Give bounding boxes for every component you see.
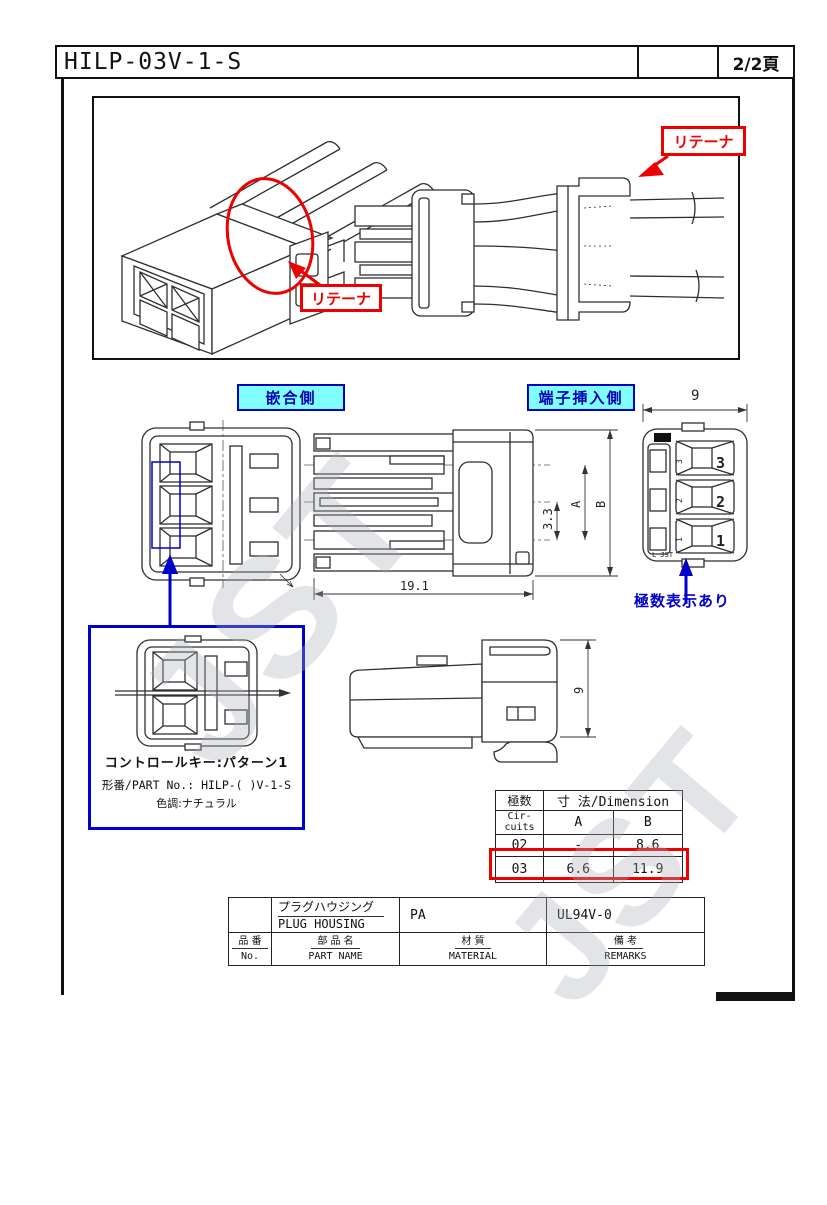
circuit-number-3: 3 xyxy=(716,454,725,472)
circuit-number-2: 2 xyxy=(716,493,725,511)
dim-table-col-b: B xyxy=(613,811,683,835)
detail-part-no: 形番/PART No.: HILP-( )V-1-S xyxy=(91,777,302,793)
svg-text:3: 3 xyxy=(675,459,684,464)
front-view-drawing xyxy=(130,418,310,590)
dim-table-header-circuits-jp: 極数 xyxy=(496,791,544,811)
control-key-detail-box: コントロールキー:パターン1 形番/PART No.: HILP-( )V-1-… xyxy=(88,625,305,830)
profile-view-drawing: 9 xyxy=(322,622,622,782)
svg-text:1: 1 xyxy=(675,537,684,542)
parts-name-value: プラグハウジング PLUG HOUSING xyxy=(272,898,400,933)
molded-text: L JST xyxy=(652,551,674,559)
dim-b: B xyxy=(594,501,608,508)
svg-text:2: 2 xyxy=(675,498,684,503)
circuit-number-1: 1 xyxy=(716,532,725,550)
dim-table-header-dimension: 寸 法/Dimension xyxy=(544,791,683,811)
parts-remarks-value: UL94V-0 xyxy=(547,898,705,933)
dim-19-1: 19.1 xyxy=(400,579,429,593)
frame-left-line xyxy=(61,78,64,995)
pictorial-views-drawing xyxy=(92,96,740,360)
parts-col-no: 品 番 No. xyxy=(229,933,272,966)
highlight-row-03 xyxy=(489,848,689,880)
rear-view-drawing: 9 3 xyxy=(634,386,800,614)
parts-table: プラグハウジング PLUG HOUSING PA UL94V-0 品 番 No.… xyxy=(228,897,705,966)
control-key-drawing xyxy=(99,634,297,752)
part-number-title: HILP-03V-1-S xyxy=(57,47,637,77)
mating-side-label: 嵌合側 xyxy=(237,384,345,411)
dim-a: A xyxy=(569,500,583,508)
dim-9-width: 9 xyxy=(691,388,699,404)
parts-col-remarks: 備 考 REMARKS xyxy=(547,933,705,966)
frame-bottom-right-segment xyxy=(716,992,795,1001)
drawing-sheet: HILP-03V-1-S 2/2頁 xyxy=(0,0,827,1205)
parts-no-value xyxy=(229,898,272,933)
dim-3-3: 3.3 xyxy=(541,508,555,530)
title-bar: HILP-03V-1-S 2/2頁 xyxy=(55,45,795,79)
title-spacer-cell xyxy=(637,47,717,77)
dim-9-height: 9 xyxy=(572,687,586,694)
detail-color-tone: 色調:ナチュラル xyxy=(91,795,302,811)
dim-table-col-a: A xyxy=(544,811,614,835)
control-key-text: コントロールキー:パターン1 xyxy=(91,752,302,771)
circuit-count-note: 極数表示あり xyxy=(634,590,750,611)
terminal-insertion-side-label: 端子挿入側 xyxy=(527,384,635,411)
detail-leader-arrow xyxy=(158,552,184,630)
parts-material-value: PA xyxy=(400,898,547,933)
retainer-label-side: リテーナ xyxy=(661,126,746,156)
dim-table-header-circuits-en: Cir- cuits xyxy=(496,811,544,835)
parts-col-material: 材 質 MATERIAL xyxy=(400,933,547,966)
page-number: 2/2頁 xyxy=(717,47,793,77)
side-view-drawing: 3.3 A B 19.1 xyxy=(300,420,635,610)
retainer-label-iso: リテーナ xyxy=(300,284,382,312)
parts-col-name: 部 品 名 PART NAME xyxy=(272,933,400,966)
